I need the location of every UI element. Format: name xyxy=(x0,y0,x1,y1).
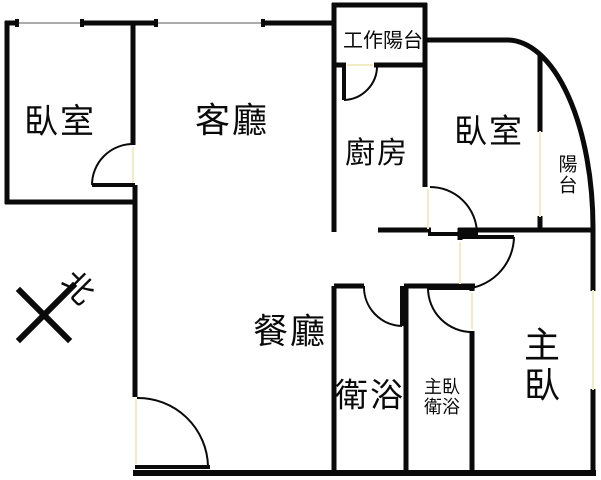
label-work-balcony: 工作陽台 xyxy=(343,30,423,52)
door-arc-entrance xyxy=(137,398,208,466)
door-arc-bathroom xyxy=(364,286,402,326)
door-arc-master-bathroom xyxy=(428,288,472,332)
label-bedroom-right: 臥室 xyxy=(454,115,524,152)
door-arc-work-balcony xyxy=(344,65,377,100)
label-kitchen: 廚房 xyxy=(345,137,409,171)
label-bedroom-left: 臥室 xyxy=(24,104,96,142)
label-balcony: 陽台 xyxy=(552,155,585,198)
floor-plan-drawing xyxy=(0,0,601,480)
door-arc-bedroom-right xyxy=(430,187,477,233)
door-arc-master-bedroom xyxy=(460,237,514,289)
label-living-room: 客廳 xyxy=(195,101,269,140)
label-bathroom: 衛浴 xyxy=(335,379,405,416)
label-dining-room: 餐廳 xyxy=(253,312,327,351)
floor-plan: 臥室 客廳 工作陽台 廚房 臥室 陽台 餐廳 衛浴 主臥 衛浴 主臥 北 xyxy=(0,0,601,480)
label-master-bedroom: 主臥 xyxy=(514,326,572,407)
door-arc-bedroom-left xyxy=(92,144,133,185)
label-master-bathroom: 主臥 衛浴 xyxy=(424,377,460,417)
door-openings xyxy=(133,65,472,464)
